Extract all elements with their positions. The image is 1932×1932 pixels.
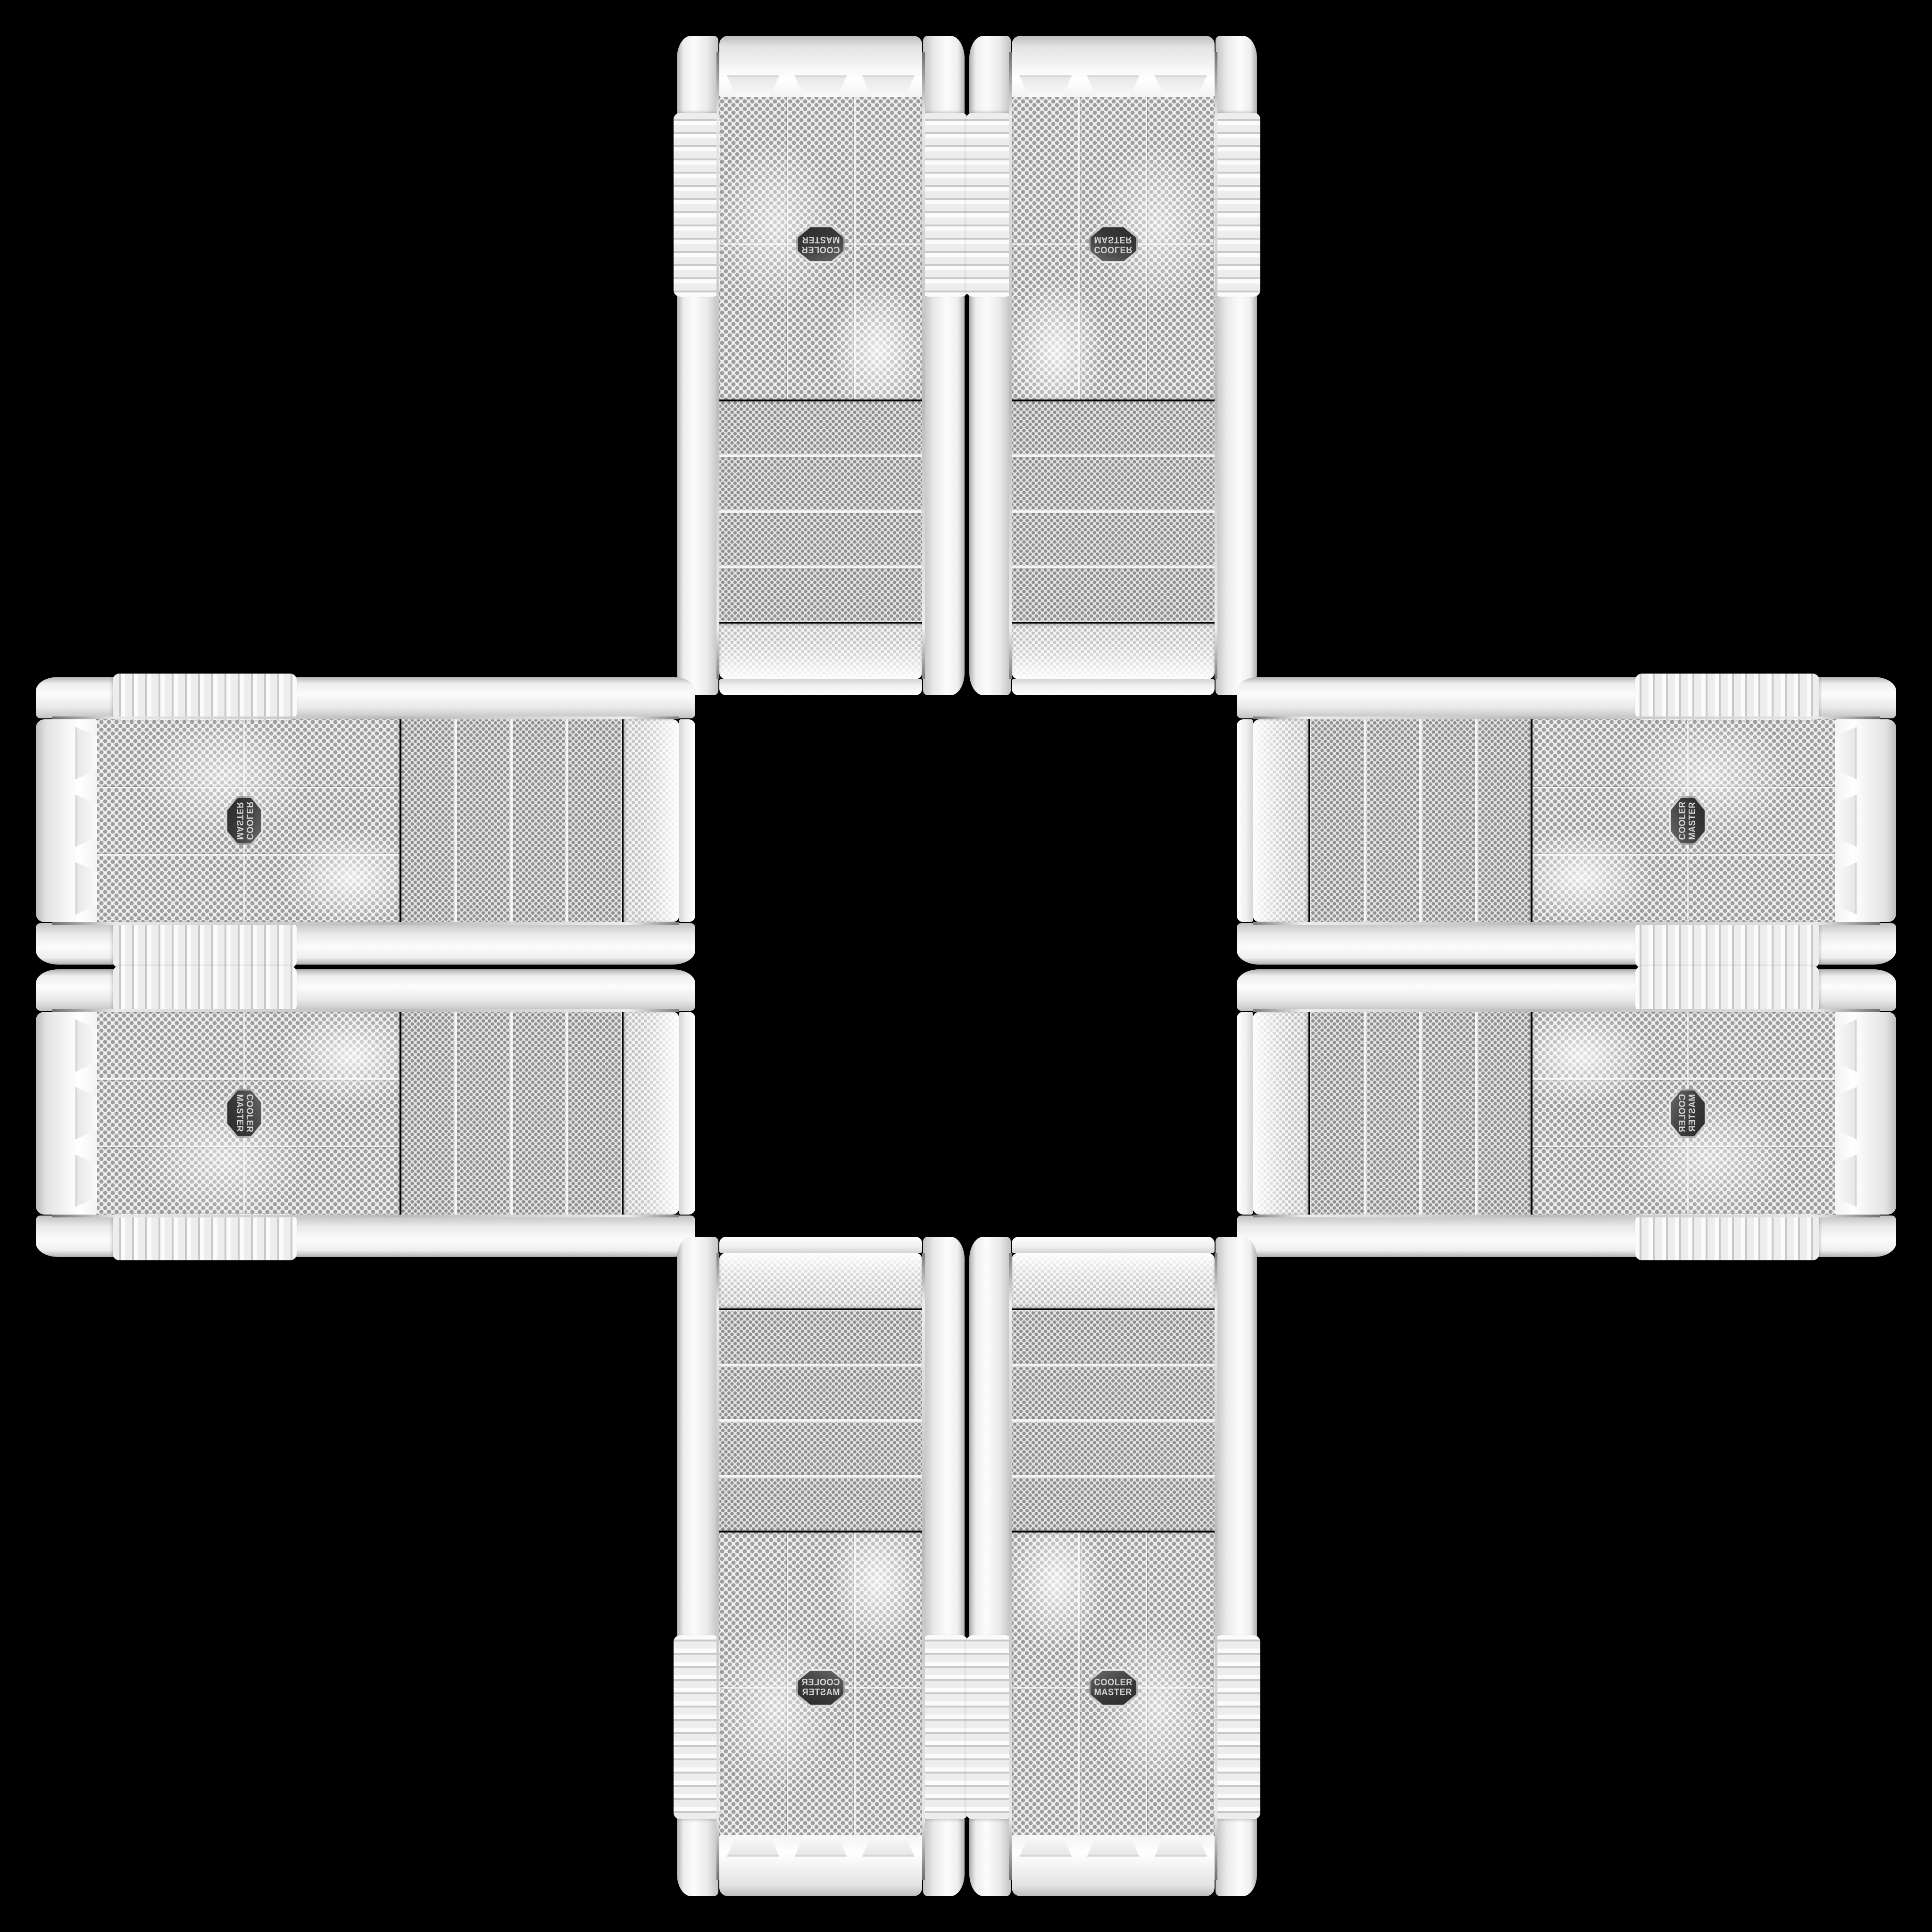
badge-text-line2: MASTER [1688,1094,1698,1132]
bezel-tab [75,860,97,916]
badge-text-line2: MASTER [1094,1688,1132,1698]
bezel-tab [1835,1018,1857,1074]
bezel-tab [75,1085,97,1141]
top-curved-mesh [719,624,922,679]
chrome-trim-right [1253,716,1880,719]
side-rail-left [1237,923,1896,965]
front-panel: COOLER MASTER [36,719,695,922]
bezel-tab [1085,1835,1141,1857]
drive-bay-cover [1012,1477,1215,1531]
drive-bay-cover [719,568,922,622]
drive-bay-cover [1421,719,1475,922]
bottom-bezel-tabs [1835,1012,1857,1215]
drive-bay-cover [1012,1366,1215,1419]
badge-text-line1: COOLER [801,244,840,254]
rail-grip-ribs [1635,966,1819,1012]
badge-text-line1: COOLER [801,1678,840,1688]
side-rail-left [969,1237,1011,1896]
bottom-bezel [36,1012,97,1215]
chrome-trim-left [1253,1009,1880,1012]
bezel-tab [1835,793,1857,849]
bezel-tab [860,1835,916,1857]
drive-bay-cover [1366,719,1419,922]
drive-bay-cover [719,1421,922,1475]
case-top-left: COOLER MASTER [677,33,965,698]
badge-text-line1: COOLER [1678,1094,1688,1132]
cooler-master-badge-face: COOLER MASTER [798,1671,843,1705]
drive-bay-cover [719,1310,922,1364]
side-rail-right [36,677,695,718]
bottom-bezel-tabs [1835,719,1857,922]
badge-text-line2: MASTER [1094,234,1132,244]
rail-grip-ribs [674,1635,720,1819]
side-rail-right [36,1216,695,1257]
side-rail-left [923,36,965,695]
rail-grip-ribs [922,113,968,297]
chrome-trim-right [716,1253,719,1880]
case-left-bottom: COOLER MASTER [33,969,698,1257]
bezel-tab [1153,75,1208,97]
chrome-trim-right [1253,1215,1880,1217]
badge-text-line1: COOLER [1094,244,1132,254]
side-rail-left [1237,969,1896,1011]
top-bezel [1012,1237,1215,1253]
rail-grip-ribs [1635,1214,1819,1260]
drive-bay-cover [457,719,511,922]
drive-bay-cover [1421,1012,1475,1215]
cooler-master-badge-face: COOLER MASTER [227,1091,261,1136]
front-panel: COOLER MASTER [36,1012,695,1215]
bezel-tab [1835,860,1857,916]
cooler-master-badge: COOLER MASTER [1669,796,1707,845]
rail-grip-ribs [1214,1635,1260,1819]
badge-text-line1: COOLER [244,801,254,840]
top-curved-mesh [624,1012,679,1215]
drive-bay-cover [719,513,922,566]
drive-bay-area [1310,1012,1531,1215]
cooler-master-badge-face: COOLER MASTER [1671,1091,1705,1136]
badge-text-line2: MASTER [1688,802,1698,840]
bezel-tab [793,75,849,97]
badge-text-line1: COOLER [1678,801,1688,840]
side-rail-right [1237,1216,1896,1257]
bezel-tab [1835,1153,1857,1208]
drive-bay-cover [1477,719,1531,922]
drive-bay-cover [401,1012,455,1215]
chrome-trim-left [922,1253,925,1880]
drive-bay-cover [719,401,922,455]
badge-text-line1: COOLER [1094,1678,1132,1688]
bezel-tab [860,75,916,97]
cooler-master-badge: COOLER MASTER [1089,225,1138,263]
rail-grip-ribs [113,922,297,968]
page-background: { "badge": { "line1": "COOLER", "line2":… [0,0,1932,1932]
front-panel: COOLER MASTER [719,1237,922,1896]
cooler-master-badge: COOLER MASTER [796,1669,845,1707]
bezel-tab [75,793,97,849]
drive-bay-cover [401,719,455,922]
bezel-tab [1835,1085,1857,1141]
badge-text-line2: MASTER [234,1094,244,1132]
bezel-tab [1085,75,1141,97]
front-panel: COOLER MASTER [1012,36,1215,695]
bezel-tab [75,725,97,781]
drive-bay-cover [1366,1012,1419,1215]
top-bezel [1012,679,1215,695]
chrome-trim-right [52,716,679,719]
drive-bay-cover [1310,1012,1364,1215]
drive-bay-cover [1012,1310,1215,1364]
top-bezel [1237,1012,1253,1215]
rail-grip-ribs [1635,922,1819,968]
case-right-top: COOLER MASTER [1234,677,1899,965]
drive-bay-cover [1477,1012,1531,1215]
drive-bay-area [401,1012,622,1215]
rail-grip-ribs [966,113,1012,297]
bottom-bezel-tabs [1012,75,1215,97]
bottom-bezel [1835,719,1896,922]
case-top-right: COOLER MASTER [969,33,1257,698]
bottom-bezel [719,36,922,97]
top-curved-mesh [624,719,679,922]
side-rail-right [677,36,718,695]
cooler-master-badge-face: COOLER MASTER [798,227,843,261]
top-curved-mesh [1012,624,1215,679]
chrome-trim-right [1215,52,1217,679]
bottom-bezel [1012,36,1215,97]
drive-bay-cover [513,719,566,922]
side-rail-right [1216,36,1257,695]
bottom-bezel [36,719,97,922]
front-panel: COOLER MASTER [1237,719,1896,922]
drive-bay-area [719,1310,922,1531]
badge-text-line1: COOLER [244,1094,254,1132]
front-panel: COOLER MASTER [1012,1237,1215,1896]
bottom-bezel-tabs [719,1835,922,1857]
rail-grip-ribs [922,1635,968,1819]
chrome-trim-left [1253,922,1880,925]
bezel-tab [1018,1835,1074,1857]
drive-bay-area [1012,401,1215,622]
badge-text-line2: MASTER [802,1688,840,1698]
top-curved-mesh [1253,1012,1308,1215]
top-bezel [1237,719,1253,922]
bottom-bezel-tabs [719,75,922,97]
bezel-tab [75,1018,97,1074]
front-panel: COOLER MASTER [719,36,922,695]
chrome-trim-left [922,52,925,679]
rail-grip-ribs [966,1635,1012,1819]
side-rail-right [677,1237,718,1896]
side-rail-left [969,36,1011,695]
drive-bay-cover [1310,719,1364,922]
chrome-trim-right [716,52,719,679]
drive-bay-cover [1012,401,1215,455]
side-rail-left [36,969,695,1011]
side-rail-right [1237,677,1896,718]
cooler-master-badge: COOLER MASTER [1669,1089,1707,1138]
chrome-trim-right [52,1215,679,1217]
rail-grip-ribs [113,1214,297,1260]
chrome-trim-left [1009,52,1012,679]
cooler-master-badge-face: COOLER MASTER [1671,798,1705,843]
cooler-master-badge: COOLER MASTER [225,1089,263,1138]
top-curved-mesh [1012,1253,1215,1308]
case-left-top: COOLER MASTER [33,677,698,965]
top-bezel [719,679,922,695]
drive-bay-cover [719,457,922,511]
top-curved-mesh [719,1253,922,1308]
case-right-bottom: COOLER MASTER [1234,969,1899,1257]
bottom-bezel [719,1835,922,1896]
bezel-tab [1018,75,1074,97]
drive-bay-cover [1012,1421,1215,1475]
cooler-master-badge-face: COOLER MASTER [1091,1671,1136,1705]
cooler-master-badge: COOLER MASTER [1089,1669,1138,1707]
cooler-master-badge-face: COOLER MASTER [1091,227,1136,261]
rail-grip-ribs [674,113,720,297]
bottom-bezel-tabs [1012,1835,1215,1857]
case-bottom-left: COOLER MASTER [677,1234,965,1899]
bottom-bezel-tabs [75,719,97,922]
drive-bay-cover [1012,568,1215,622]
drive-bay-area [1012,1310,1215,1531]
drive-bay-area [1310,719,1531,922]
drive-bay-cover [513,1012,566,1215]
badge-text-line2: MASTER [234,802,244,840]
bezel-tab [1153,1835,1208,1857]
bottom-bezel [1012,1835,1215,1896]
bezel-tab [75,1153,97,1208]
drive-bay-cover [1012,513,1215,566]
chrome-trim-right [1215,1253,1217,1880]
drive-bay-area [719,401,922,622]
drive-bay-cover [719,1477,922,1531]
top-bezel [679,719,695,922]
drive-bay-cover [719,1366,922,1419]
rail-grip-ribs [113,674,297,720]
bezel-tab [725,1835,781,1857]
rail-grip-ribs [1635,674,1819,720]
bezel-tab [793,1835,849,1857]
side-rail-right [1216,1237,1257,1896]
side-rail-left [923,1237,965,1896]
collage-stage: COOLER MASTER [0,0,1932,1932]
side-rail-left [36,923,695,965]
badge-text-line2: MASTER [802,234,840,244]
cooler-master-badge-face: COOLER MASTER [227,798,261,843]
drive-bay-cover [568,719,622,922]
cooler-master-badge: COOLER MASTER [225,796,263,845]
drive-bay-cover [457,1012,511,1215]
bottom-bezel-tabs [75,1012,97,1215]
bezel-tab [1835,725,1857,781]
chrome-trim-left [1009,1253,1012,1880]
cooler-master-badge: COOLER MASTER [796,225,845,263]
drive-bay-cover [568,1012,622,1215]
drive-bay-cover [1012,457,1215,511]
top-bezel [679,1012,695,1215]
bottom-bezel [1835,1012,1896,1215]
chrome-trim-left [52,1009,679,1012]
top-bezel [719,1237,922,1253]
bezel-tab [725,75,781,97]
case-bottom-right: COOLER MASTER [969,1234,1257,1899]
front-panel: COOLER MASTER [1237,1012,1896,1215]
top-curved-mesh [1253,719,1308,922]
drive-bay-area [401,719,622,922]
chrome-trim-left [52,922,679,925]
rail-grip-ribs [113,966,297,1012]
rail-grip-ribs [1214,113,1260,297]
